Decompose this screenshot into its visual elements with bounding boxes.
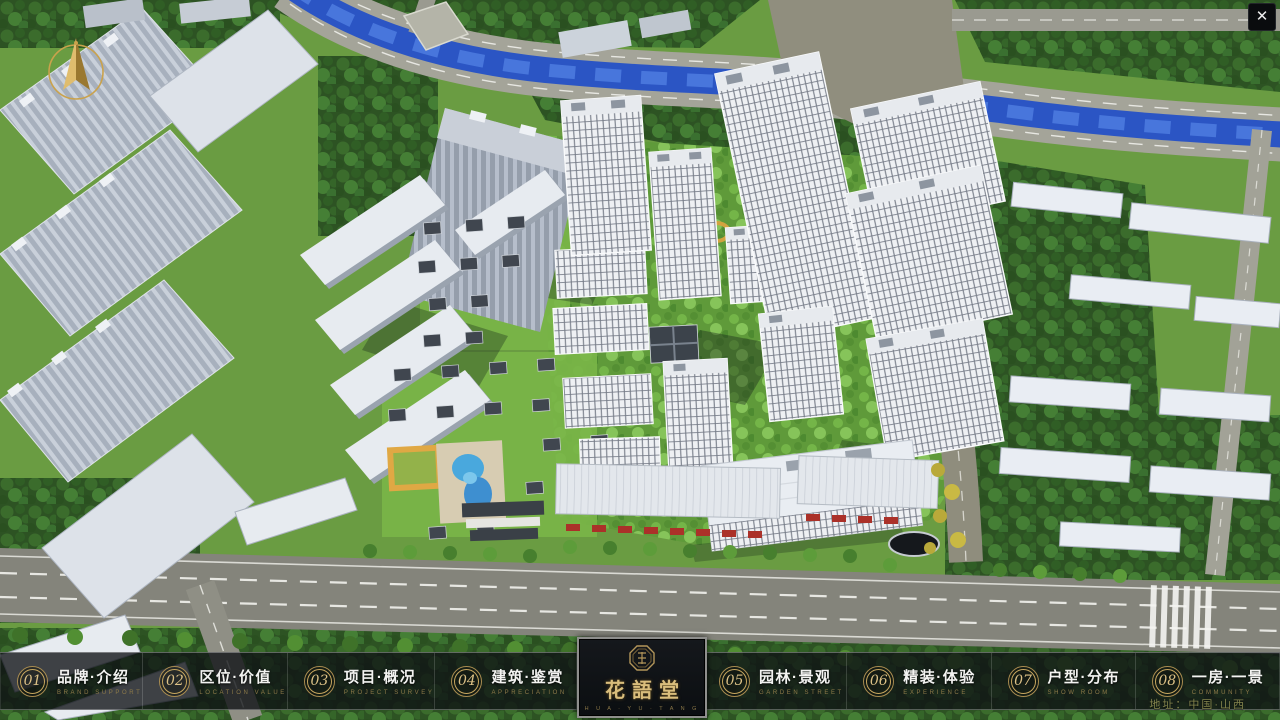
nav-item-project-survey[interactable]: 03 项目·概况PROJECT SURVEY xyxy=(288,653,436,709)
nav-label: 建筑·鉴赏 xyxy=(491,666,566,687)
nav-sublabel: APPRECIATION xyxy=(491,690,566,696)
nav-label: 园林·景观 xyxy=(759,666,844,687)
nav-label: 户型·分布 xyxy=(1048,666,1121,687)
nav-sublabel: GARDEN STREET xyxy=(759,690,844,696)
nav-sublabel: BRAND SUPPORT xyxy=(57,690,142,696)
nav-label: 一房·一景 xyxy=(1192,666,1265,687)
pavilion xyxy=(649,325,699,363)
nav-item-architecture[interactable]: 04 建筑·鉴赏APPRECIATION xyxy=(435,653,577,709)
kindergarten xyxy=(387,445,443,492)
nav-sublabel: PROJECT SURVEY xyxy=(344,690,435,696)
close-button[interactable]: ✕ xyxy=(1248,3,1276,31)
seal-icon xyxy=(628,644,656,672)
nav-badge-02: 02 xyxy=(159,666,190,697)
masterplan-render xyxy=(0,0,1280,720)
nav-item-location-value[interactable]: 02 区位·价值LOCATION VALUE xyxy=(143,653,288,709)
nav-label: 区位·价值 xyxy=(199,666,287,687)
nav-sublabel: SHOW ROOM xyxy=(1048,690,1121,696)
nav-label: 品牌·介绍 xyxy=(57,666,142,687)
nav-badge-01: 01 xyxy=(17,666,48,697)
brand-plaque: 花語堂 H U A · Y U · T A N G xyxy=(577,637,707,718)
nav-badge-05: 05 xyxy=(719,666,750,697)
app-window: ✕ 01 品牌·介绍BRAND SUPPORT 02 区位·价值LOCATION… xyxy=(0,0,1280,720)
nav-badge-03: 03 xyxy=(304,666,335,697)
nav-sublabel: EXPERIENCE xyxy=(903,690,976,696)
nav-label: 项目·概况 xyxy=(344,666,435,687)
nav-badge-06: 06 xyxy=(863,666,894,697)
nav-badge-04: 04 xyxy=(451,666,482,697)
nav-item-unit-distribution[interactable]: 07 户型·分布SHOW ROOM xyxy=(992,653,1136,709)
nav-item-brand-intro[interactable]: 01 品牌·介绍BRAND SUPPORT xyxy=(0,653,143,709)
project-address: 地址：中国·山西 xyxy=(1149,696,1246,712)
navbar-left-group: 01 品牌·介绍BRAND SUPPORT 02 区位·价值LOCATION V… xyxy=(0,653,577,709)
nav-item-decoration-experience[interactable]: 06 精装·体验EXPERIENCE xyxy=(847,653,991,709)
nav-badge-08: 08 xyxy=(1152,666,1183,697)
brand-subtitle: H U A · Y U · T A N G xyxy=(585,706,700,712)
nav-sublabel: LOCATION VALUE xyxy=(199,690,287,696)
nav-badge-07: 07 xyxy=(1008,666,1039,697)
entrance-gate xyxy=(462,501,544,542)
nav-item-garden-landscape[interactable]: 05 园林·景观GARDEN STREET xyxy=(703,653,847,709)
brand-title: 花語堂 xyxy=(598,674,686,703)
nav-label: 精装·体验 xyxy=(903,666,976,687)
